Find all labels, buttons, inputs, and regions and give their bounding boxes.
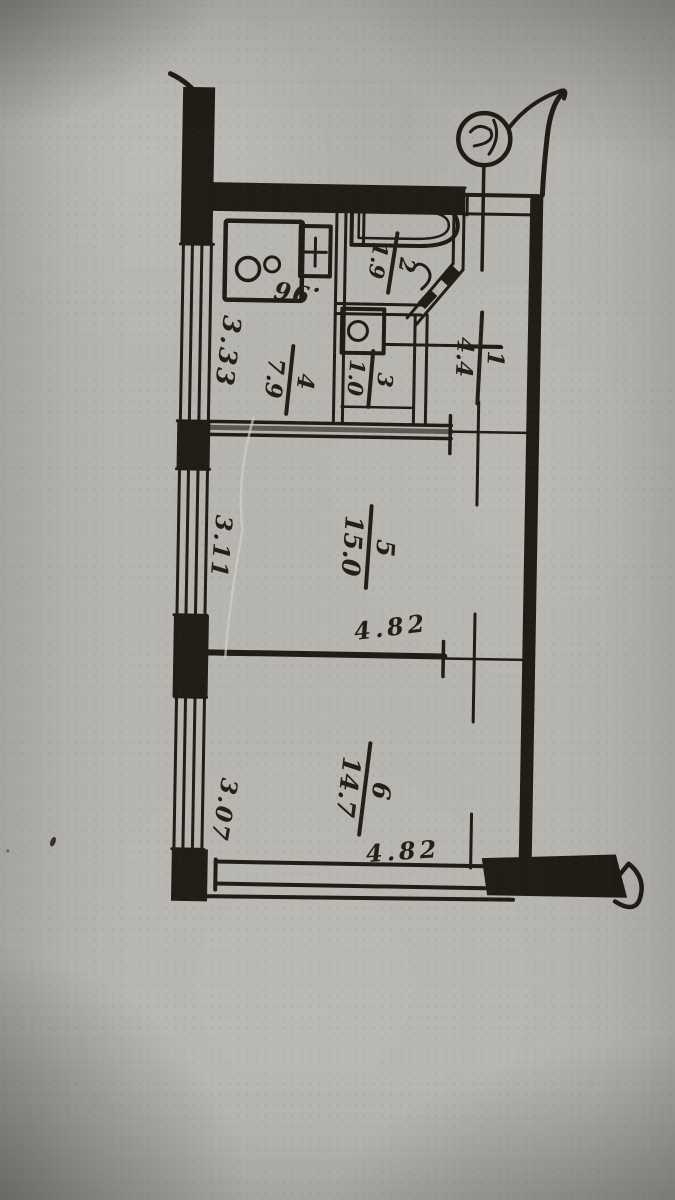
room-label-3: 3 1.0 — [344, 347, 399, 411]
floor-plan-photo: 1 4.4 2 1.9 3 1.0 4 7.9 5 15.0 6 14.7 — [0, 0, 675, 1200]
room-2-area: 1.9 — [366, 241, 392, 280]
dim-room5-width: 4.82 — [352, 608, 429, 646]
room-2-number: 2 — [396, 256, 419, 274]
room-3-area: 1.0 — [345, 359, 369, 397]
room-3-number: 3 — [374, 372, 396, 388]
dim-room5-window: 3.11 — [205, 514, 237, 580]
dim-kitchen-inner: .96 — [270, 275, 322, 312]
room-1-area: 4.4 — [452, 337, 477, 378]
plan-labels: 1 4.4 2 1.9 3 1.0 4 7.9 5 15.0 6 14.7 — [0, 0, 675, 1200]
room-4-area: 7.9 — [261, 357, 288, 399]
dim-room6-width: 4.82 — [365, 834, 441, 868]
room-6-area: 14.7 — [333, 755, 365, 818]
room-label-5: 5 15.0 — [337, 502, 400, 592]
room-label-2: 2 1.9 — [364, 228, 423, 299]
room-label-1: 1 4.4 — [451, 309, 509, 407]
room-label-4: 4 7.9 — [260, 341, 321, 418]
room-6-number: 6 — [368, 781, 395, 801]
room-5-area: 15.0 — [338, 515, 367, 577]
room-1-number: 1 — [483, 350, 507, 367]
room-5-number: 5 — [372, 539, 398, 558]
dim-kitchen-window: 3.33 — [209, 314, 247, 390]
room-4-number: 4 — [293, 372, 318, 390]
room-label-6: 6 14.7 — [331, 738, 400, 840]
dim-room6-window: 3.07 — [205, 776, 243, 844]
